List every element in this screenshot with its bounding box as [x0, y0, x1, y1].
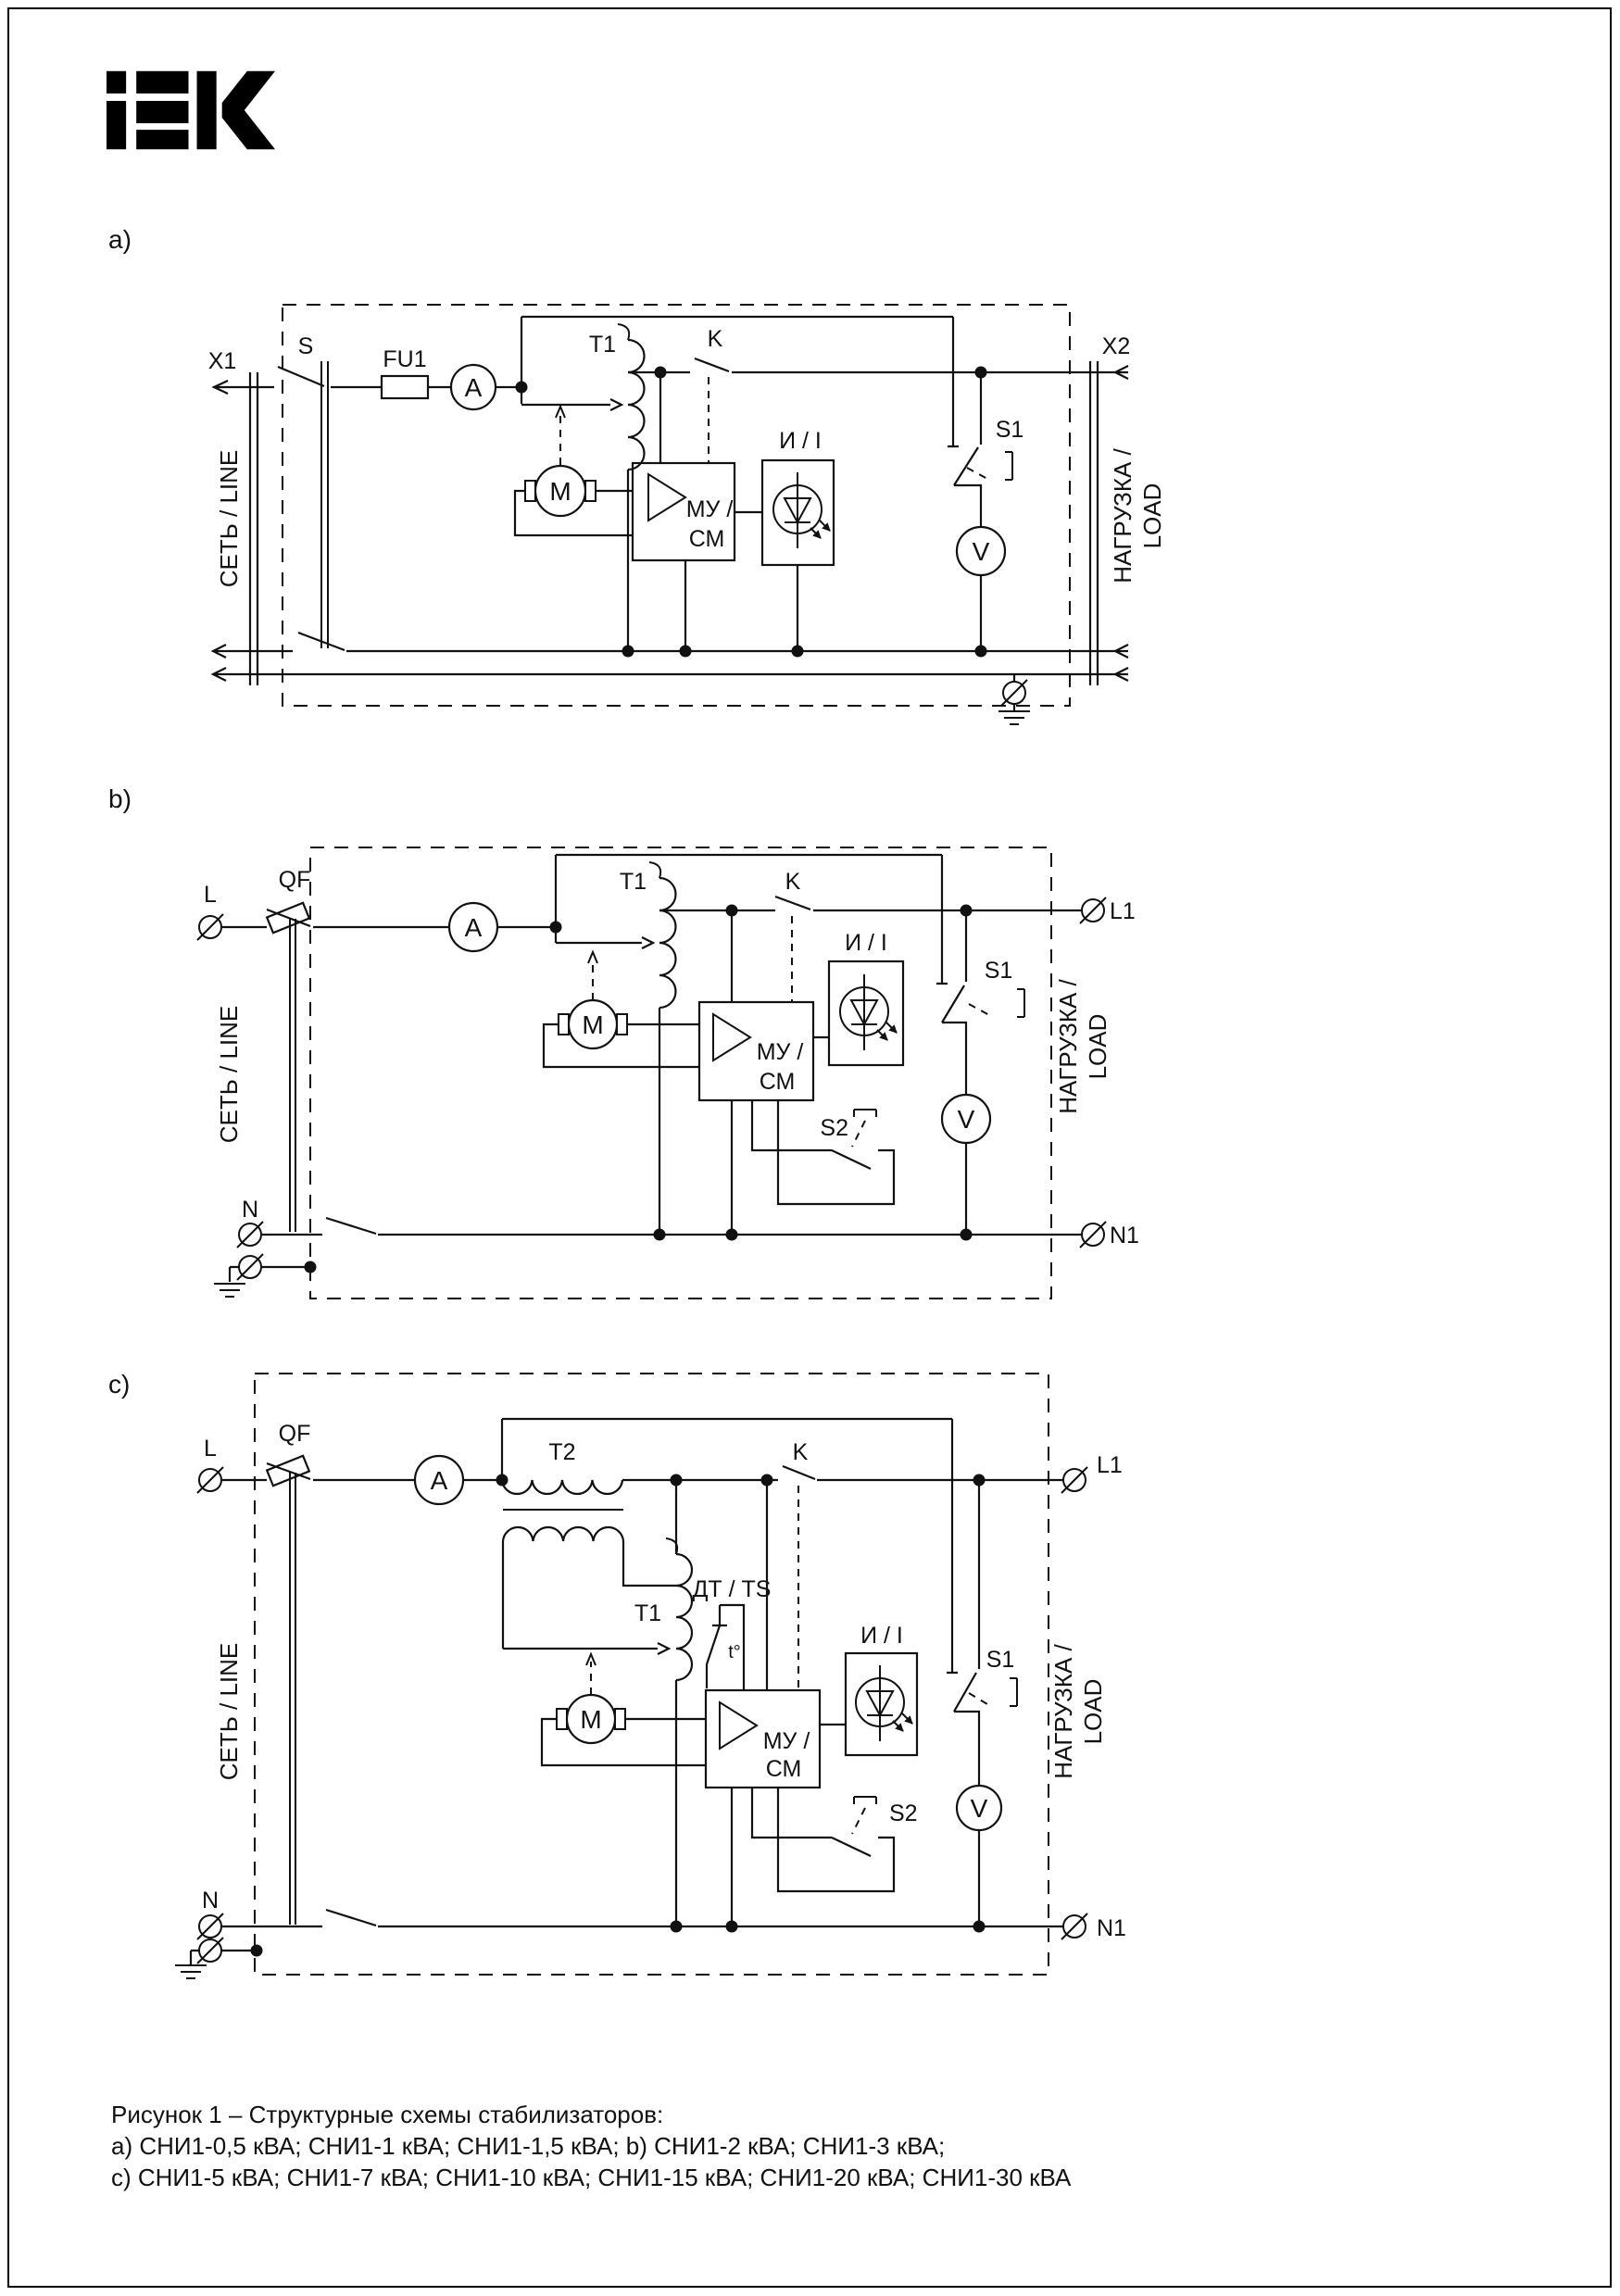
bottom-rails — [346, 645, 1128, 682]
terminal-earth — [237, 1254, 263, 1280]
earth-terminal — [1001, 680, 1027, 706]
terminal-l — [197, 914, 223, 940]
breaker-qf — [222, 1456, 415, 1926]
label-n1: N1 — [1097, 1915, 1126, 1941]
label-k: K — [708, 326, 723, 352]
indicator-block — [829, 961, 903, 1065]
motor — [544, 952, 699, 1067]
transformer-t1 — [666, 1480, 692, 1926]
motor — [515, 407, 633, 535]
label-control-line1: МУ / — [686, 496, 734, 522]
switch-s1 — [954, 1673, 1017, 1787]
caption-line-1: Рисунок 1 – Структурные схемы стабилизат… — [111, 2099, 1269, 2130]
label-line-side: СЕТЬ / LINE — [215, 1006, 243, 1144]
enclosure-dashed-border — [255, 1374, 1049, 1975]
label-l: L — [204, 1436, 217, 1462]
label-s1: S1 — [985, 958, 1013, 984]
terminal-l1 — [1061, 1467, 1087, 1493]
caption-line-3: c) СНИ1-5 кВА; СНИ1-7 кВА; СНИ1-10 кВА; … — [111, 2162, 1269, 2193]
terminal-l — [197, 1467, 223, 1493]
label-n1: N1 — [1110, 1223, 1139, 1248]
junction-dots — [305, 905, 973, 1273]
diagram-a: a) X1 СЕТЬ / LINE S — [108, 225, 1166, 724]
label-load-line2: LOAD — [1084, 1014, 1111, 1080]
label-load-line1: НАГРУЗКА / — [1049, 1643, 1077, 1778]
document-page: IEK a) — [0, 0, 1620, 2296]
indicator-block — [846, 1653, 917, 1755]
terminal-n — [237, 1222, 263, 1248]
control-block — [633, 463, 762, 651]
label-qf: QF — [279, 1421, 311, 1447]
terminal-n1 — [1080, 1222, 1106, 1248]
label-k: K — [793, 1439, 809, 1465]
figure-caption: Рисунок 1 – Структурные схемы стабилизат… — [111, 2099, 1269, 2193]
ammeter — [415, 1456, 498, 1504]
connector-x1 — [250, 372, 257, 685]
label-n: N — [242, 1197, 258, 1223]
label-ammeter: A — [431, 1466, 448, 1495]
terminal-l1 — [1080, 897, 1106, 923]
indicator-block — [762, 460, 834, 651]
section-label-b: b) — [108, 784, 132, 813]
label-k: K — [785, 869, 801, 895]
label-control-line2: СМ — [689, 526, 725, 552]
switch-s2 — [752, 1788, 894, 1891]
label-motor: M — [580, 1705, 601, 1734]
label-indicator: И / I — [779, 428, 822, 454]
label-n: N — [202, 1888, 219, 1913]
label-control-line1: МУ / — [763, 1728, 810, 1754]
switch-s1 — [942, 985, 1024, 1095]
label-t1: T1 — [589, 332, 616, 358]
label-load-line2: LOAD — [1138, 483, 1166, 549]
label-motor: M — [582, 1010, 603, 1039]
diagram-c: c) L СЕТЬ / LINE QF A — [108, 1370, 1126, 1978]
label-t1: T1 — [634, 1600, 661, 1626]
label-indicator: И / I — [845, 930, 887, 956]
connector-x2 — [1090, 361, 1098, 685]
label-load-line1: НАГРУЗКА / — [1054, 978, 1082, 1113]
label-s1: S1 — [986, 1647, 1015, 1673]
label-load-line1: НАГРУЗКА / — [1109, 447, 1137, 583]
label-s2: S2 — [889, 1800, 918, 1826]
label-l1: L1 — [1097, 1452, 1123, 1478]
label-control-line2: СМ — [766, 1756, 802, 1782]
label-line-side: СЕТЬ / LINE — [215, 1643, 243, 1781]
section-label-c: c) — [108, 1370, 130, 1399]
switch-s — [278, 361, 345, 650]
label-thermal-contact: t° — [728, 1642, 741, 1662]
bottom-rails — [230, 1235, 1081, 1282]
section-label-a: a) — [108, 225, 132, 254]
label-ammeter: A — [465, 373, 483, 402]
label-line-side: СЕТЬ / LINE — [215, 450, 243, 588]
control-block — [699, 1002, 829, 1235]
ground-symbol — [998, 711, 1030, 724]
ground-symbol — [175, 1965, 207, 1978]
label-control-line2: СМ — [760, 1069, 796, 1095]
label-indicator: И / I — [860, 1623, 903, 1649]
label-l: L — [204, 882, 217, 908]
bottom-rails — [191, 1926, 1063, 1965]
label-thermal-sensor: ДТ / TS — [693, 1576, 772, 1602]
fuse-fu1 — [331, 376, 451, 398]
stabilizer-schematics: a) X1 СЕТЬ / LINE S — [0, 0, 1620, 2296]
label-t2: T2 — [548, 1439, 575, 1465]
label-voltmeter: V — [971, 1794, 988, 1823]
label-motor: M — [549, 477, 571, 506]
switch-s1 — [954, 372, 1012, 527]
motor — [542, 1654, 706, 1765]
label-s1: S1 — [996, 417, 1024, 443]
ammeter — [451, 365, 517, 409]
label-s: S — [298, 333, 314, 359]
label-fu1: FU1 — [383, 346, 426, 372]
regulation-wires — [556, 855, 948, 984]
caption-line-2: a) СНИ1-0,5 кВА; СНИ1-1 кВА; СНИ1-1,5 кВ… — [111, 2130, 1269, 2162]
breaker-qf — [222, 903, 449, 1234]
label-voltmeter: V — [973, 537, 990, 566]
terminal-n — [197, 1913, 223, 1939]
label-l1: L1 — [1110, 898, 1136, 924]
label-s2: S2 — [820, 1115, 848, 1141]
diagram-b: b) L СЕТЬ / LINE QF A — [108, 784, 1139, 1299]
label-ammeter: A — [465, 913, 483, 942]
regulation-wires — [521, 317, 959, 446]
label-x1: X1 — [208, 348, 237, 374]
label-load-line2: LOAD — [1079, 1679, 1107, 1745]
output-line — [628, 358, 1128, 463]
label-voltmeter: V — [958, 1105, 975, 1134]
label-x2: X2 — [1102, 333, 1131, 359]
input-wires — [213, 381, 1128, 681]
transformer-t1 — [649, 862, 676, 1235]
label-control-line1: МУ / — [757, 1039, 804, 1065]
ground-symbol — [214, 1284, 245, 1297]
enclosure-dashed-border — [310, 847, 1051, 1299]
terminal-n1 — [1061, 1913, 1087, 1939]
terminal-earth — [197, 1938, 223, 1964]
label-qf: QF — [279, 867, 311, 893]
label-t1: T1 — [620, 869, 647, 895]
